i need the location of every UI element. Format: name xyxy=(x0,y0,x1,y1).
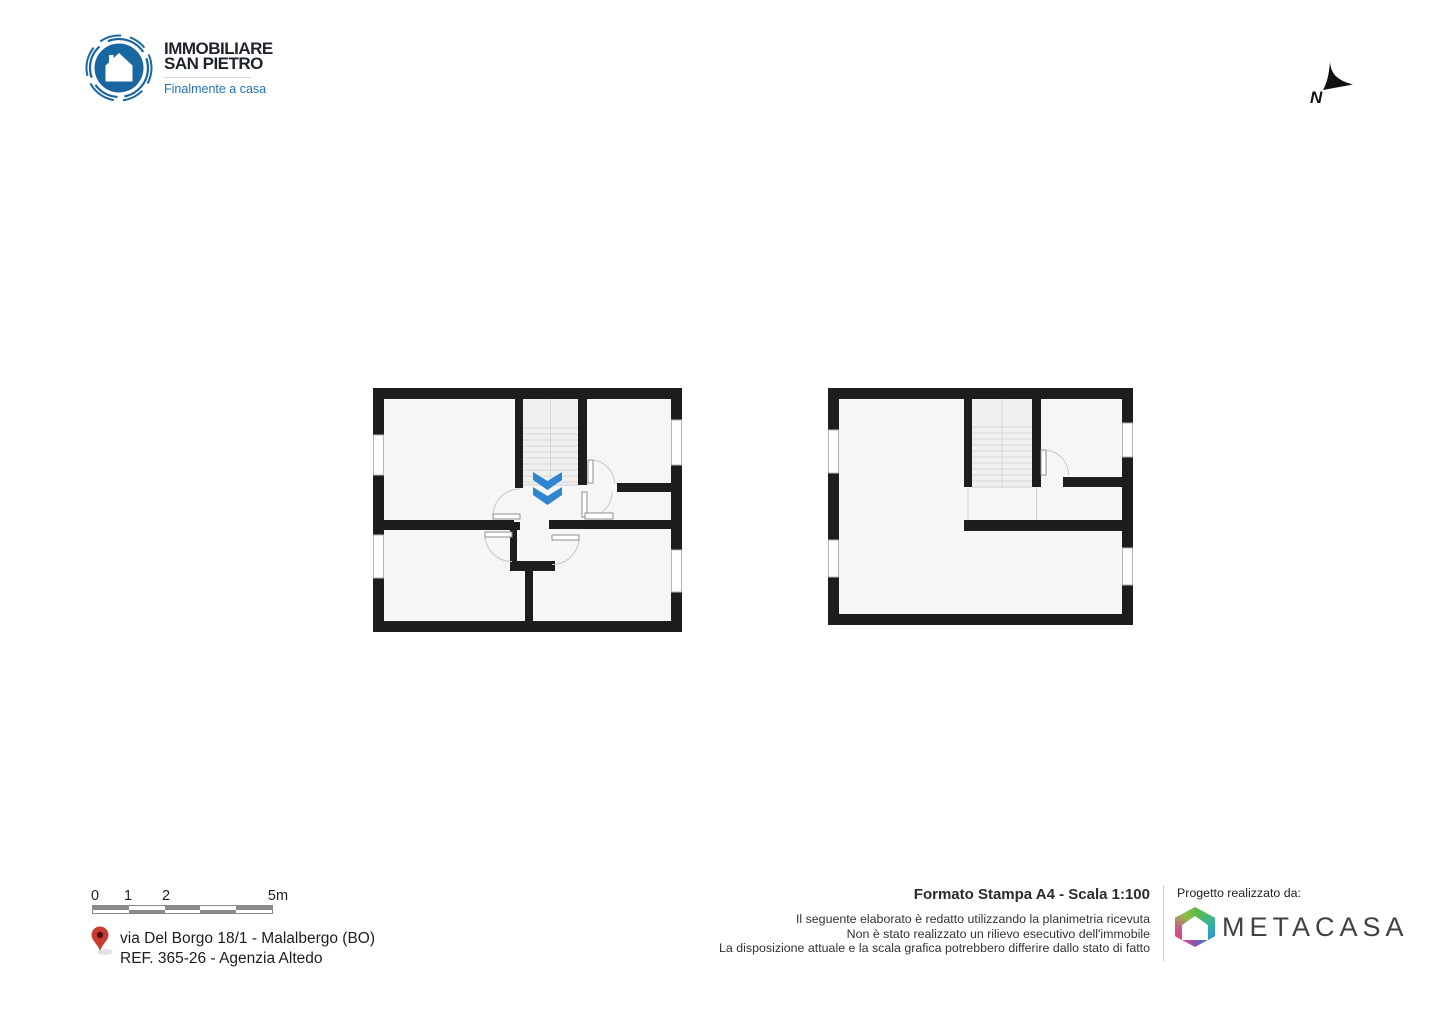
door-leaf-right-plan xyxy=(1041,450,1046,475)
print-info: Formato Stampa A4 - Scala 1:100 Il segue… xyxy=(650,886,1150,956)
address-line2: REF. 365-26 - Agenzia Altedo xyxy=(120,949,375,969)
north-label: N xyxy=(1310,88,1323,106)
brand-divider xyxy=(164,77,251,78)
agency-logo: IMMOBILIARE SAN PIETRO Finalmente a casa xyxy=(85,34,273,102)
floorplan-sheet: { "branding": { "name_line1": "IMMOBILIA… xyxy=(0,0,1440,1018)
metacasa-logo-icon xyxy=(1175,907,1215,947)
north-arrow-icon: N xyxy=(1308,56,1360,106)
scale-label-2: 2 xyxy=(162,888,170,904)
footer-divider xyxy=(1163,885,1164,961)
floor-plan-left xyxy=(373,388,682,632)
credits-label: Progetto realizzato da: xyxy=(1177,886,1301,900)
metacasa-wordmark: METACASA xyxy=(1222,912,1409,943)
disclaimer-line1: Il seguente elaborato è redatto utilizza… xyxy=(650,912,1150,927)
property-address: via Del Borgo 18/1 - Malalbergo (BO) REF… xyxy=(120,929,375,968)
agency-name-line2: SAN PIETRO xyxy=(164,56,273,72)
print-format-title: Formato Stampa A4 - Scala 1:100 xyxy=(650,886,1150,903)
disclaimer-line3: La disposizione attuale e la scala grafi… xyxy=(650,941,1150,956)
map-pin-icon xyxy=(90,925,116,956)
disclaimer-line2: Non è stato realizzato un rilievo esecut… xyxy=(650,927,1150,942)
agency-tagline: Finalmente a casa xyxy=(164,82,273,96)
scale-label-1: 1 xyxy=(124,888,132,904)
scale-bar-graphic xyxy=(92,905,273,914)
floor-plan-right xyxy=(828,388,1133,625)
scale-label-5m: 5m xyxy=(268,888,288,904)
scale-bar: 0 1 2 5m xyxy=(92,888,312,918)
scale-label-0: 0 xyxy=(91,888,99,904)
address-line1: via Del Borgo 18/1 - Malalbergo (BO) xyxy=(120,929,375,949)
agency-house-circle-icon xyxy=(85,34,153,102)
